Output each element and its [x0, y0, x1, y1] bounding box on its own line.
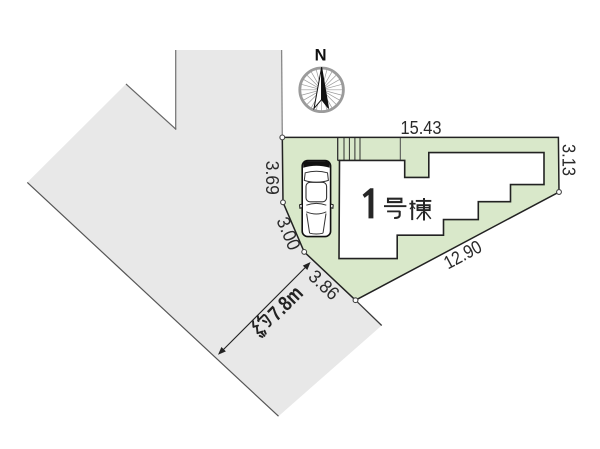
svg-text:N: N: [315, 47, 327, 65]
svg-text:15.43: 15.43: [401, 117, 442, 138]
svg-text:3.69: 3.69: [262, 161, 283, 195]
svg-text:3.13: 3.13: [558, 144, 579, 176]
